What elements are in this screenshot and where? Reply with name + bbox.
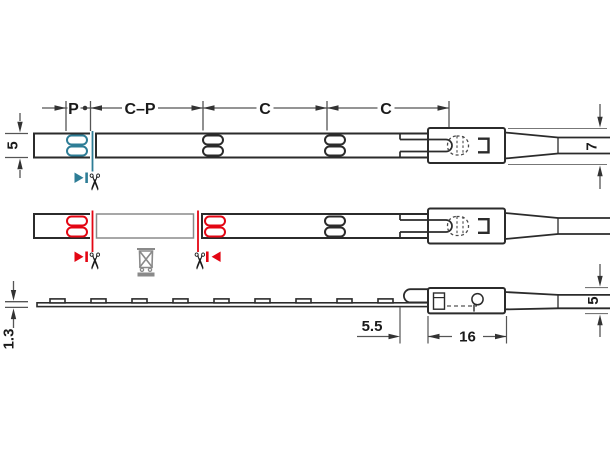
cut-direction-marker-icon (206, 252, 221, 263)
weee-crossed-bin-icon (137, 249, 155, 277)
dimension-strip-width-5: 5 (4, 113, 28, 178)
dimension-label-c-minus-p: C–P (124, 101, 155, 118)
thickness-value: 1.3 (0, 329, 17, 350)
end-connector (400, 128, 610, 163)
dimension-label-c-1: C (259, 101, 271, 118)
technical-drawing-canvas: P C–P C C 5 ✂ 7 (0, 0, 610, 450)
strip-segment-main (96, 134, 429, 158)
scissors-icon: ✂ (81, 173, 107, 192)
solder-pads-red (205, 217, 225, 237)
side-view: 1.3 5.5 (0, 264, 610, 349)
dimension-16: 16 (428, 316, 507, 346)
dimension-lead-width-5: 5 (585, 264, 608, 337)
end-connector (400, 209, 610, 244)
strip-segment-right (202, 214, 429, 238)
dimension-thickness-1-3: 1.3 (0, 281, 28, 349)
top-view: P C–P C C 5 ✂ 7 (4, 100, 610, 192)
dimension-label-p: P (68, 101, 79, 118)
led-chip (296, 299, 311, 303)
led-chip (378, 299, 393, 303)
solder-pads (325, 217, 345, 237)
lead-width-value: 7 (583, 142, 600, 150)
led-chip (214, 299, 229, 303)
solder-pads-blue (67, 136, 87, 156)
led-chip (173, 299, 188, 303)
connector-length-value: 16 (459, 329, 476, 346)
strip-width-value: 5 (4, 141, 21, 149)
connector-clip-tongue (404, 289, 430, 302)
led-chip (132, 299, 147, 303)
led-chip (337, 299, 352, 303)
solder-pads (203, 136, 223, 156)
middle-view: ✂ ✂ (34, 209, 610, 277)
dimension-5-5: 5.5 (357, 308, 400, 344)
dimension-label-c-2: C (380, 101, 392, 118)
led-chip (255, 299, 270, 303)
led-chips (50, 299, 393, 303)
lead-width-side-value: 5 (585, 296, 602, 304)
removed-segment (97, 214, 194, 238)
scissors-icon: ✂ (81, 252, 107, 271)
solder-pads-red (67, 217, 87, 237)
led-end-gap-value: 5.5 (362, 318, 383, 335)
dimension-dot (83, 106, 88, 111)
led-chip (50, 299, 65, 303)
led-chip (91, 299, 106, 303)
solder-pads (325, 136, 345, 156)
led-strip-dimension-drawing: P C–P C C 5 ✂ 7 (0, 0, 610, 450)
